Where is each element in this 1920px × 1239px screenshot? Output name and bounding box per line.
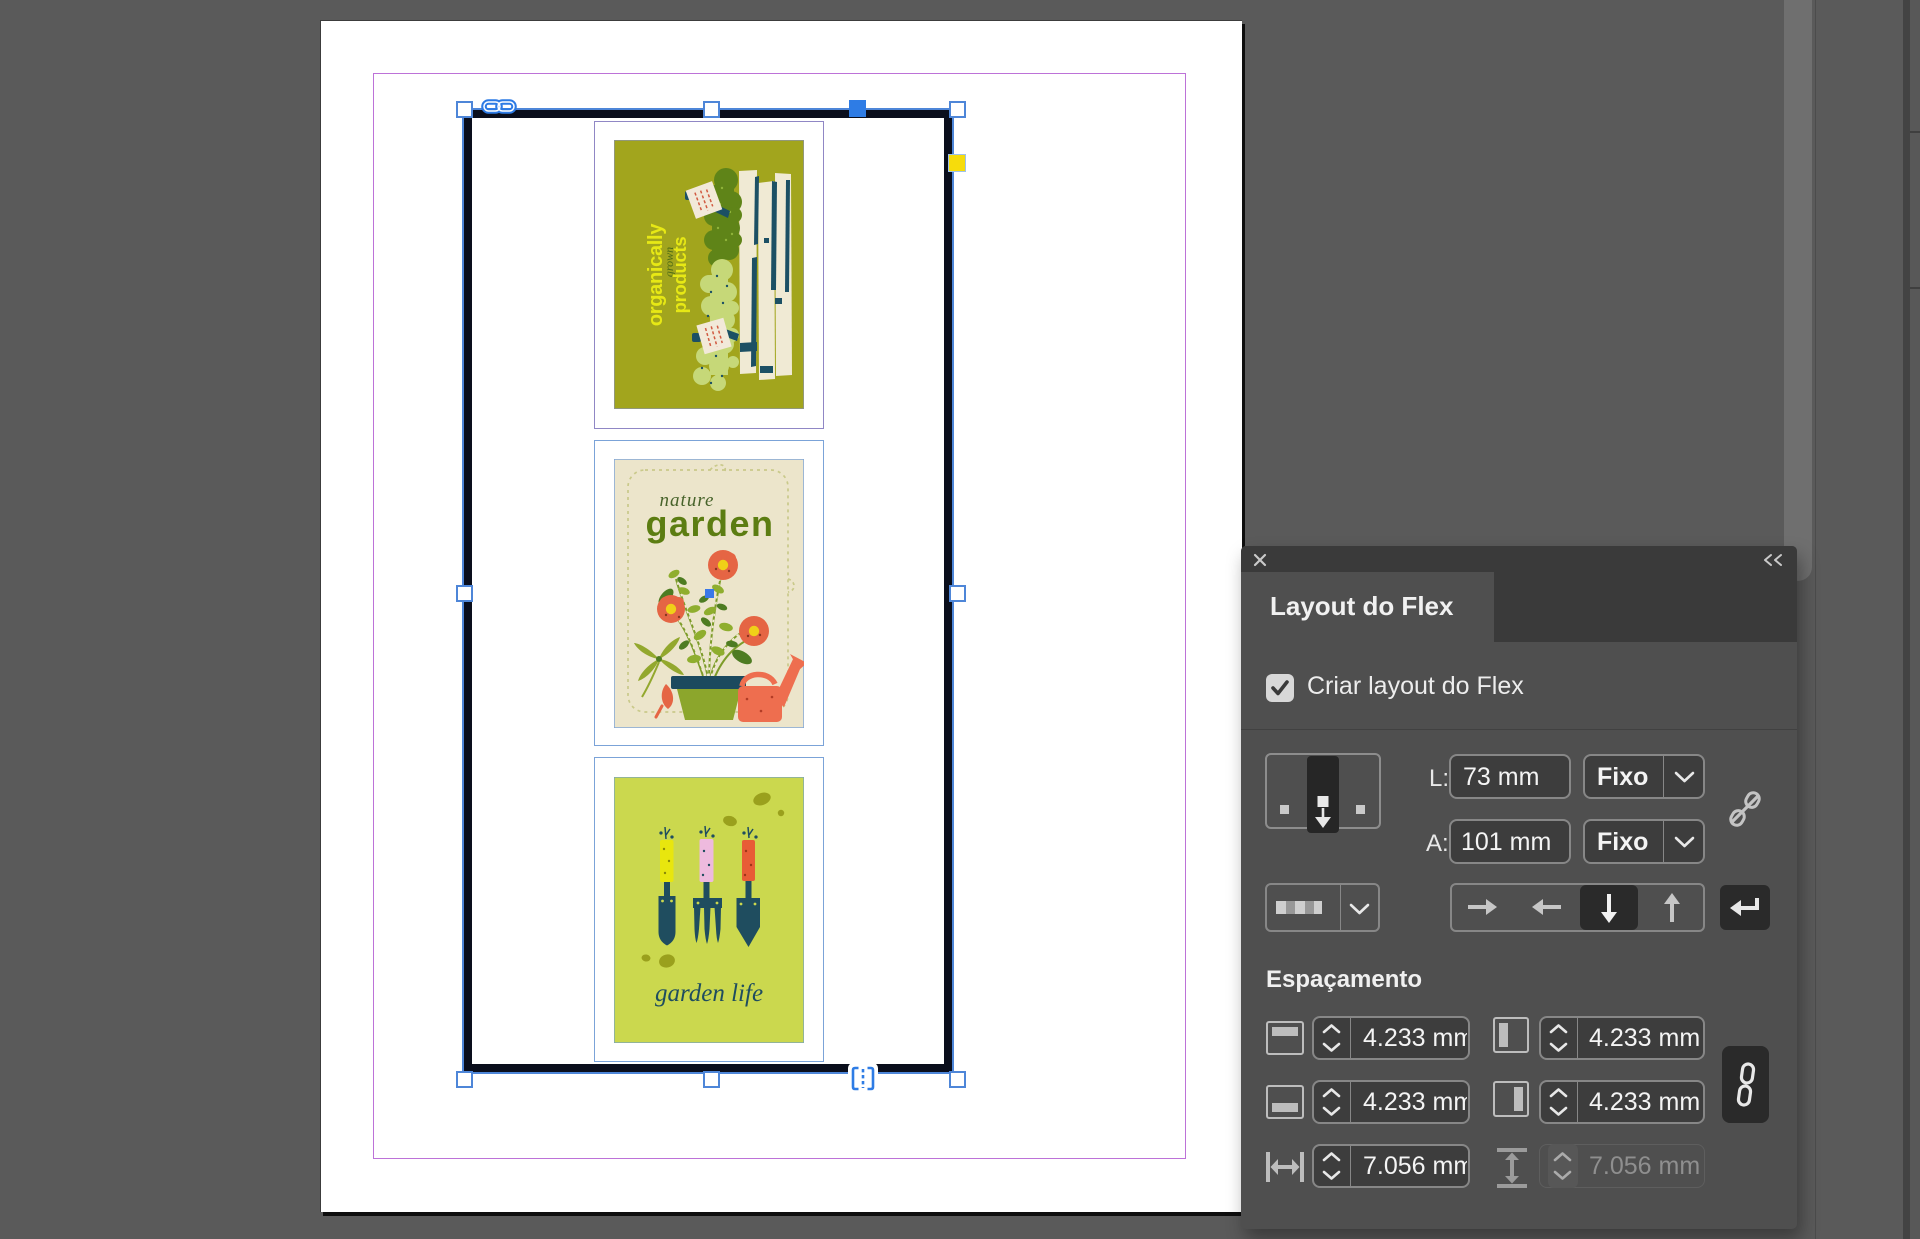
- svg-text:products: products: [669, 237, 690, 314]
- svg-text:garden: garden: [645, 503, 774, 544]
- svg-text:garden life: garden life: [655, 980, 763, 1007]
